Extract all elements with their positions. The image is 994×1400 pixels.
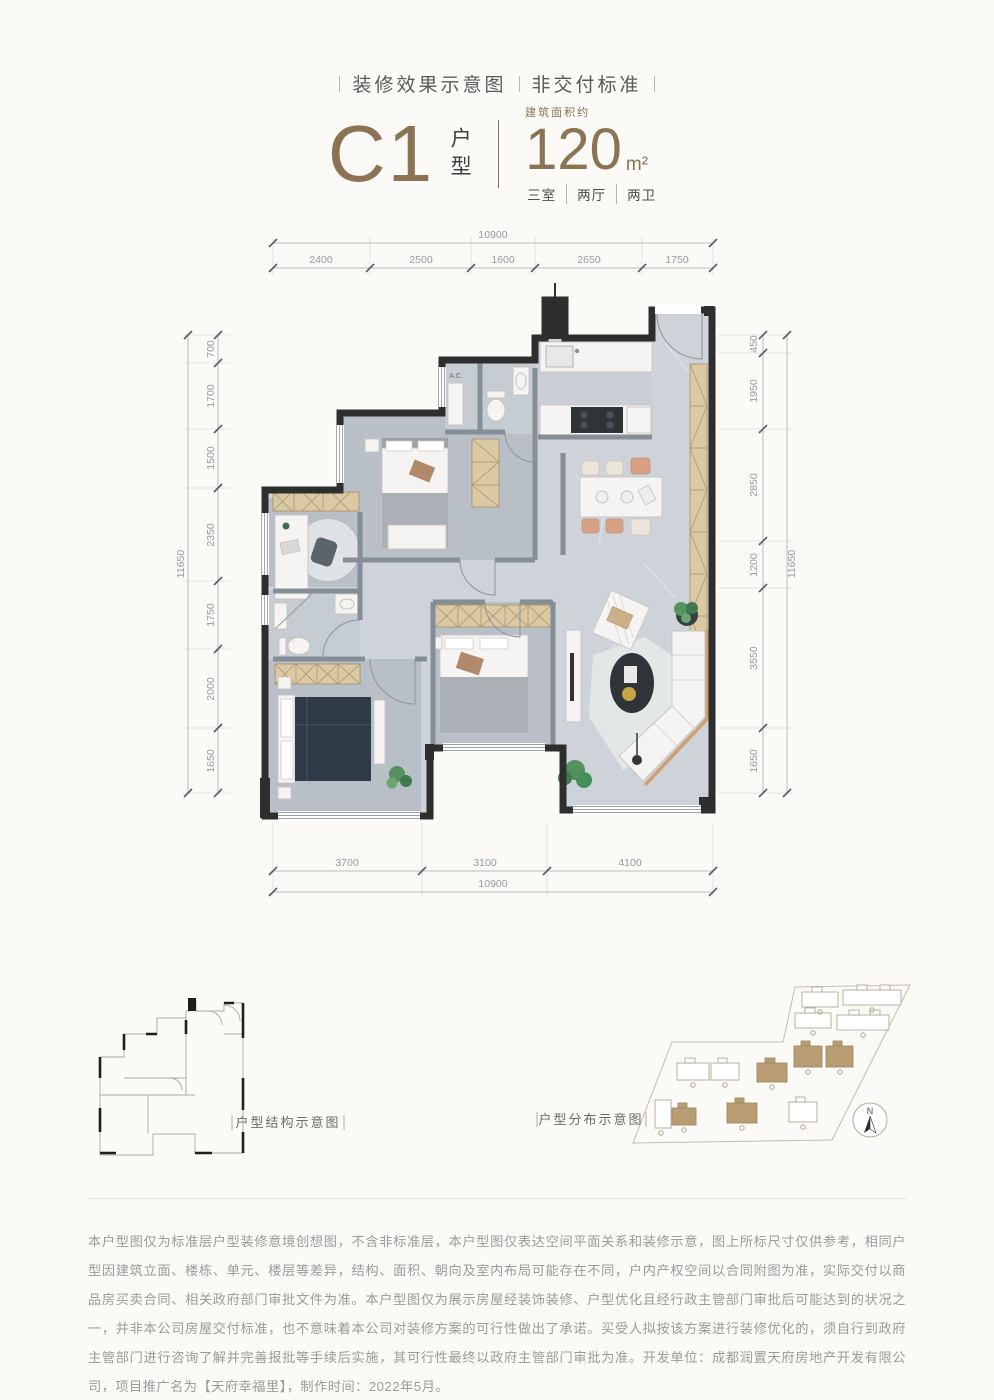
svg-text:1650: 1650: [205, 749, 217, 773]
svg-text:1200: 1200: [748, 553, 760, 577]
structure-diagram-label: 户型结构示意图: [235, 1115, 340, 1130]
distribution-diagram-label: 户型分布示意图: [538, 1112, 643, 1127]
washbasin: [513, 367, 529, 395]
rooms-bedrooms: 三室: [525, 184, 566, 204]
svg-text:2350: 2350: [205, 523, 217, 547]
diagrams-svg: 户型结构示意图: [60, 960, 940, 1195]
divider-rule: [88, 1198, 906, 1199]
svg-text:1950: 1950: [748, 379, 760, 403]
sink: [546, 346, 573, 367]
stove: [571, 407, 623, 433]
svg-text:1700: 1700: [205, 384, 217, 408]
svg-text:700: 700: [205, 340, 217, 358]
svg-text:1600: 1600: [491, 254, 515, 266]
svg-text:1650: 1650: [748, 749, 760, 773]
brochure-page: 装修效果示意图 非交付标准 C1 户型 建筑面积约 120 m² 三室 两厅 两…: [0, 0, 994, 1400]
structure-diagram: 户型结构示意图: [100, 998, 344, 1155]
svg-text:2850: 2850: [748, 473, 760, 497]
area-block: 建筑面积约 120 m² 三室 两厅 两卫: [525, 104, 666, 204]
svg-text:3100: 3100: [473, 857, 497, 869]
disclaimer-text: 本户型图仅为标准层户型装修意境创想图，不含非标准层，本户型图仅表达空间平面关系和…: [88, 1227, 906, 1400]
ac-unit: [448, 383, 463, 425]
area-unit: m²: [626, 155, 648, 174]
page-header: 装修效果示意图 非交付标准: [0, 70, 994, 97]
wardrobe: [273, 492, 359, 511]
divider-bar: [519, 76, 520, 92]
bench: [374, 700, 385, 764]
divider-bar: [654, 76, 655, 92]
bed: [295, 697, 371, 781]
svg-text:11650: 11650: [786, 550, 798, 579]
floorplan-svg: A.C. 10900 2400 2500 1600 2650 1750: [175, 225, 820, 910]
wardrobe: [472, 439, 499, 507]
bathtub: [274, 603, 287, 629]
svg-text:2650: 2650: [577, 254, 601, 266]
svg-text:1750: 1750: [205, 603, 217, 627]
rooms-baths: 两卫: [616, 184, 666, 204]
divider-bar: [339, 76, 340, 92]
desk: [275, 515, 308, 599]
header-right-text: 非交付标准: [532, 70, 642, 97]
distribution-diagram: N 户型分布示意图: [537, 985, 910, 1143]
toilet: [487, 399, 505, 421]
unit-title: C1 户型 建筑面积约 120 m² 三室 两厅 两卫: [0, 104, 994, 204]
svg-text:450: 450: [748, 335, 760, 353]
svg-text:3700: 3700: [335, 857, 359, 869]
svg-text:2400: 2400: [309, 254, 333, 266]
unit-type-label: 户型: [444, 127, 474, 187]
title-divider: [498, 120, 499, 188]
svg-text:2500: 2500: [409, 254, 433, 266]
nightstand: [278, 787, 291, 799]
dresser: [388, 525, 446, 549]
svg-text:1500: 1500: [205, 446, 217, 470]
svg-text:4100: 4100: [618, 857, 642, 869]
unit-code: C1: [328, 114, 434, 194]
svg-text:11650: 11650: [175, 550, 187, 579]
compass: N: [853, 1103, 887, 1137]
svg-text:10900: 10900: [478, 878, 507, 890]
tv: [570, 653, 574, 701]
svg-text:3550: 3550: [748, 646, 760, 670]
svg-text:1750: 1750: [665, 254, 689, 266]
ac-label: A.C.: [449, 373, 463, 380]
washbasin: [335, 594, 359, 614]
rooms-halls: 两厅: [566, 184, 616, 204]
dining-set: [580, 458, 662, 535]
nightstand: [278, 677, 291, 689]
nightstand: [365, 439, 379, 452]
area-value: 120: [525, 121, 622, 179]
compass-n: N: [867, 1106, 874, 1116]
svg-text:2000: 2000: [205, 677, 217, 701]
header-left-text: 装修效果示意图: [352, 70, 506, 97]
floor-lamp: [632, 755, 642, 765]
toilet: [288, 638, 310, 655]
room-count: 三室 两厅 两卫: [525, 184, 666, 204]
svg-text:10900: 10900: [478, 229, 507, 241]
